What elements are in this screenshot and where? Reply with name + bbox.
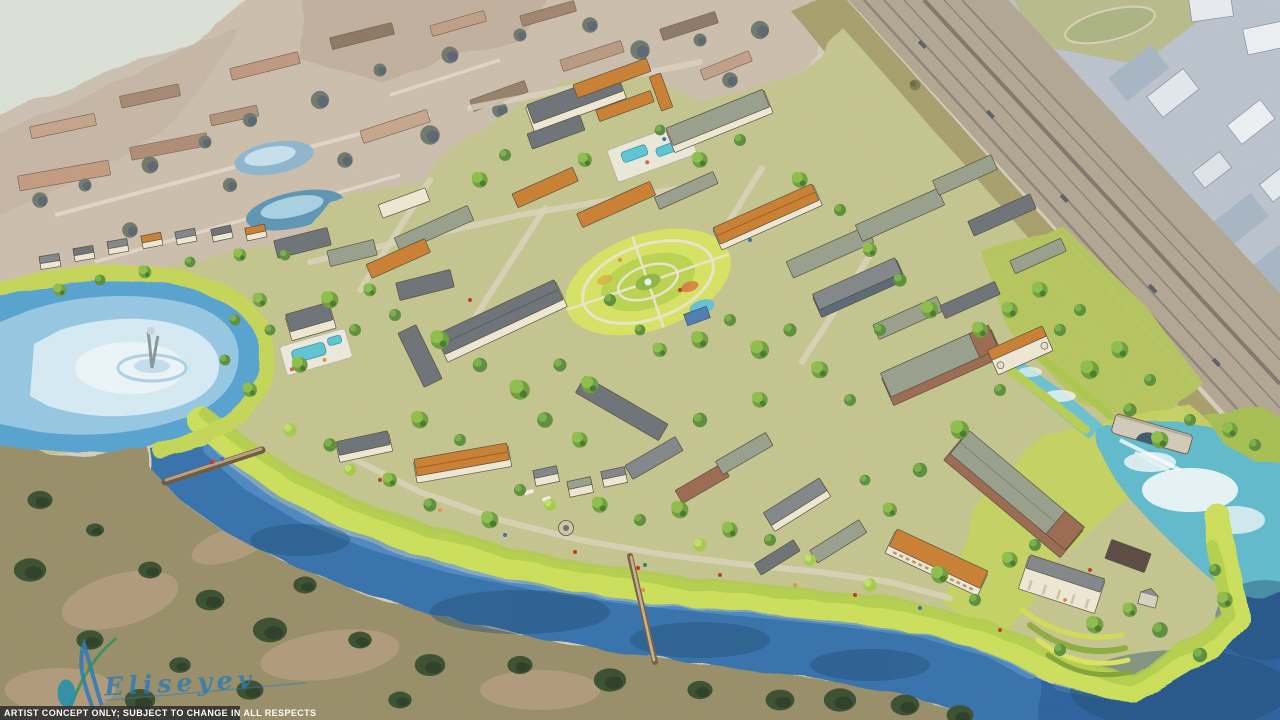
- rendering-viewport: Aerial watercolor artist rendering of a …: [0, 0, 1280, 720]
- paper-grain: [0, 0, 1280, 720]
- watercolor-rendering: Aerial watercolor artist rendering of a …: [0, 0, 1280, 720]
